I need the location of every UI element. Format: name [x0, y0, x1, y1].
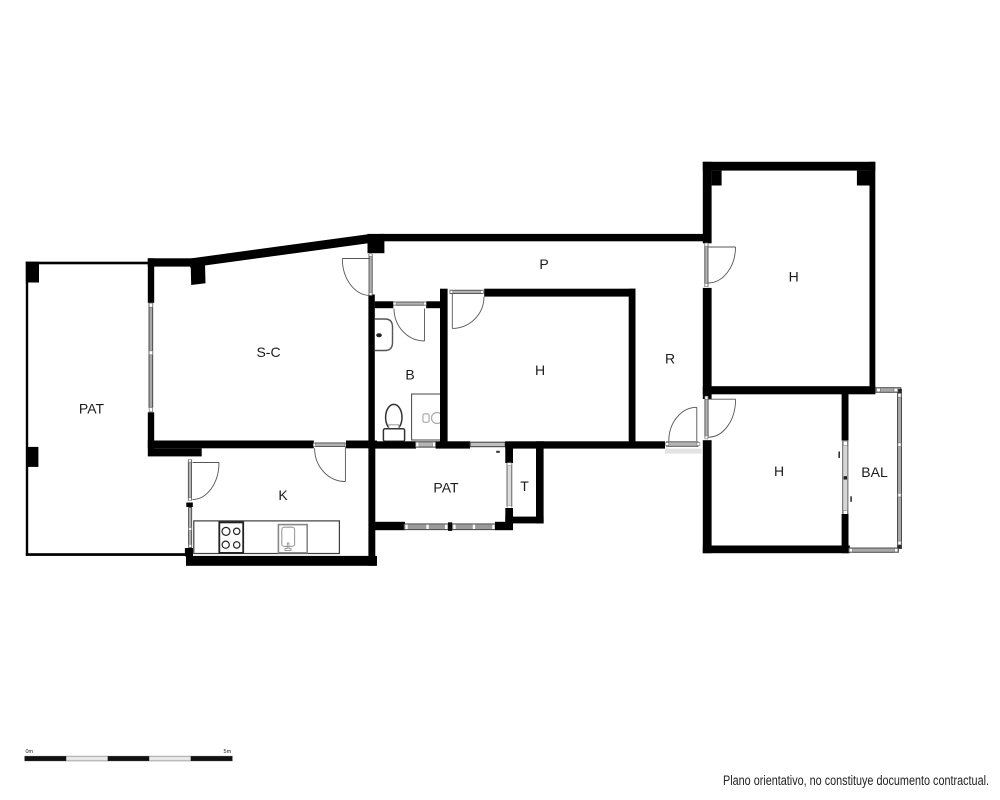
svg-text:R: R — [665, 351, 675, 367]
svg-text:P: P — [539, 256, 548, 272]
svg-text:K: K — [278, 487, 288, 503]
svg-text:T: T — [520, 478, 529, 494]
svg-text:Plano orientativo, no constitu: Plano orientativo, no constituye documen… — [723, 773, 989, 788]
svg-text:0m: 0m — [26, 749, 34, 755]
svg-text:B: B — [405, 367, 414, 383]
svg-text:BAL: BAL — [861, 464, 888, 480]
svg-text:PAT: PAT — [433, 480, 459, 496]
svg-text:PAT: PAT — [79, 401, 105, 417]
svg-text:S-C: S-C — [256, 344, 280, 360]
svg-text:H: H — [789, 269, 799, 285]
svg-text:H: H — [774, 463, 784, 479]
svg-text:5m: 5m — [224, 749, 232, 755]
svg-text:H: H — [535, 362, 545, 378]
